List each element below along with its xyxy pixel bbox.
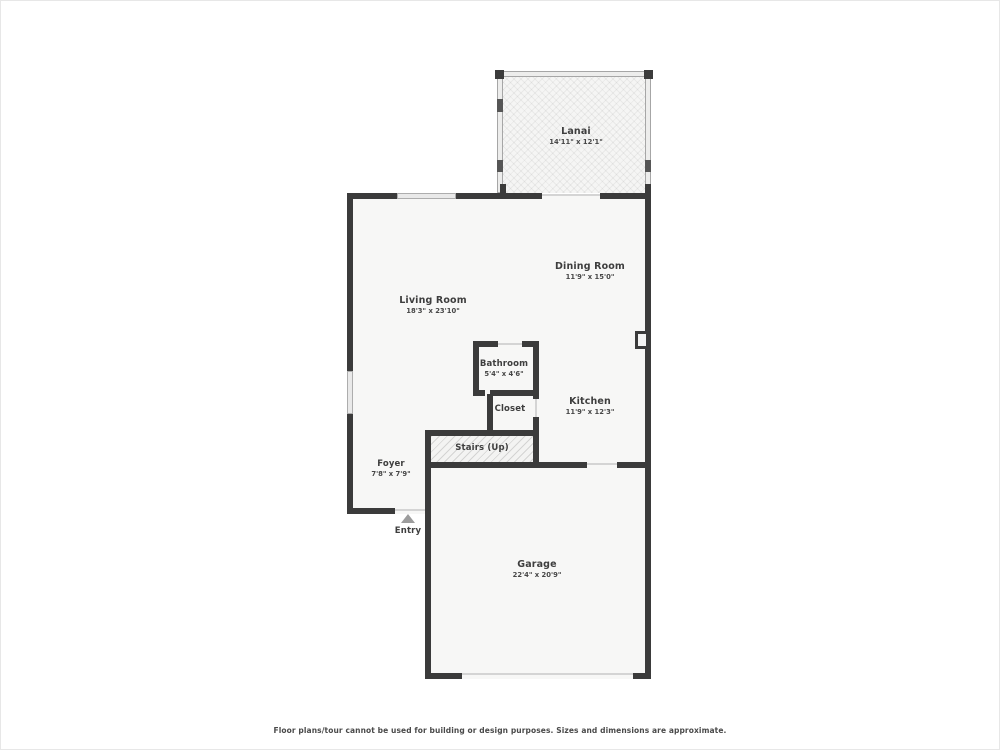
wall-right <box>645 193 651 679</box>
floor-plan: Lanai 14'11" x 12'1" Living Room 18'3" x… <box>0 0 1000 750</box>
wall-garage-bottom-a <box>425 673 462 679</box>
sliding-door-opening <box>542 194 600 196</box>
lanai-post-top-right <box>644 70 653 79</box>
wall-closet-left <box>487 394 493 434</box>
room-dims: 11'9" x 15'0" <box>555 274 625 282</box>
wall-top-a <box>347 193 398 199</box>
entry-opening <box>395 509 425 511</box>
wall-kitchen-garage-b <box>617 462 651 468</box>
room-dims: 14'11" x 12'1" <box>549 139 602 147</box>
wall-kitchen-garage-a <box>533 462 587 468</box>
wall-closet-right-b <box>533 417 539 468</box>
lanai-post-left-mid <box>497 99 503 112</box>
room-label-garage: Garage 22'4" x 20'9" <box>513 560 562 580</box>
room-label-stairs: Stairs (Up) <box>455 444 508 454</box>
room-dims: 5'4" x 4'6" <box>480 371 528 379</box>
room-dims: 22'4" x 20'9" <box>513 572 562 580</box>
closet-door-opening <box>535 399 537 417</box>
lanai-post-left-lower <box>497 160 503 172</box>
wall-garage-bottom-b <box>633 673 651 679</box>
window-left <box>347 371 353 414</box>
room-name: Entry <box>395 527 421 537</box>
room-label-foyer: Foyer 7'8" x 7'9" <box>371 460 410 479</box>
room-name: Closet <box>495 405 526 415</box>
room-name: Bathroom <box>480 360 528 370</box>
wall-stairs-top <box>425 430 539 436</box>
wall-top-b <box>456 193 542 199</box>
window-top <box>397 193 456 199</box>
wall-stairs-bottom <box>425 462 539 468</box>
room-name: Garage <box>513 560 562 571</box>
garage-door <box>462 673 633 675</box>
wall-bathroom-left <box>473 341 479 396</box>
water-heater-fixture <box>635 331 649 349</box>
room-label-bathroom: Bathroom 5'4" x 4'6" <box>480 360 528 379</box>
lanai-wall-top <box>497 71 651 77</box>
bathroom-door-opening <box>498 343 522 345</box>
lanai-wall-right <box>645 71 651 193</box>
room-label-living-room: Living Room 18'3" x 23'10" <box>399 296 467 316</box>
lanai-post-right-lower <box>645 160 651 172</box>
lanai-wall-left <box>497 71 503 193</box>
room-label-dining-room: Dining Room 11'9" x 15'0" <box>555 262 625 282</box>
room-name: Dining Room <box>555 262 625 273</box>
wall-top-c <box>600 193 651 199</box>
wall-closet-right-a <box>533 341 539 399</box>
entry-label: Entry <box>395 527 421 537</box>
room-label-kitchen: Kitchen 11'9" x 12'3" <box>566 397 615 417</box>
room-name: Kitchen <box>566 397 615 408</box>
wall-foyer-bottom <box>347 508 395 514</box>
room-dims: 7'8" x 7'9" <box>371 471 410 479</box>
wall-bathroom-bottom-a <box>473 390 485 396</box>
room-name: Living Room <box>399 296 467 307</box>
room-name: Foyer <box>371 460 410 470</box>
room-label-lanai: Lanai 14'11" x 12'1" <box>549 127 602 147</box>
room-dims: 11'9" x 12'3" <box>566 409 615 417</box>
entry-direction-icon <box>401 514 415 523</box>
garage-entry-door-opening <box>587 463 617 465</box>
room-label-closet: Closet <box>495 405 526 415</box>
disclaimer-text: Floor plans/tour cannot be used for buil… <box>274 726 727 735</box>
room-name: Lanai <box>549 127 602 138</box>
lanai-post-top-left <box>495 70 504 79</box>
wall-bathroom-bottom-b <box>490 390 539 396</box>
room-dims: 18'3" x 23'10" <box>399 308 467 316</box>
wall-left <box>347 193 353 514</box>
room-name: Stairs (Up) <box>455 444 508 454</box>
